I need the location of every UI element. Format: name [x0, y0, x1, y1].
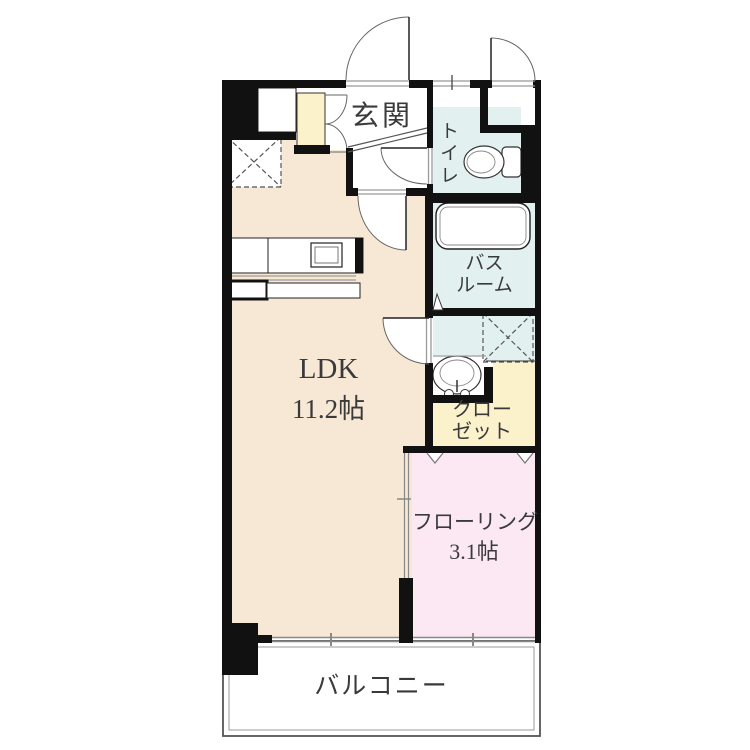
label-ldk: LDK [232, 351, 425, 387]
label-ldk-area: 11.2帖 [232, 387, 425, 426]
label-closet-line1: クロー [428, 399, 536, 421]
label-flooring: フローリング [412, 506, 536, 536]
duct-space [521, 128, 541, 196]
refrigerator-space [227, 137, 281, 187]
label-genkan: 玄関 [330, 94, 434, 134]
meter-box-door [491, 38, 535, 81]
label-bathroom-line2: ルーム [433, 275, 536, 297]
label-flooring-area: 3.1帖 [412, 534, 536, 566]
label-bathroom-line1: バス [433, 253, 536, 275]
label-closet: クローゼット [428, 399, 536, 443]
pillar-top-left [222, 82, 258, 132]
floorplan-canvas: 玄関 トイレ バスルーム LDK 11.2帖 クローゼット フローリング 3.1… [0, 0, 750, 750]
kitchen-counter [226, 238, 363, 299]
label-toilet: トイレ [434, 121, 461, 197]
label-balcony: バルコニー [222, 666, 541, 702]
entrance-door [346, 17, 409, 80]
washroom-floor [433, 315, 536, 361]
bathtub [436, 203, 530, 249]
entrance-storage [258, 88, 296, 132]
label-closet-line2: ゼット [428, 421, 536, 443]
label-bathroom: バスルーム [433, 253, 536, 297]
toilet-bowl [464, 146, 521, 178]
